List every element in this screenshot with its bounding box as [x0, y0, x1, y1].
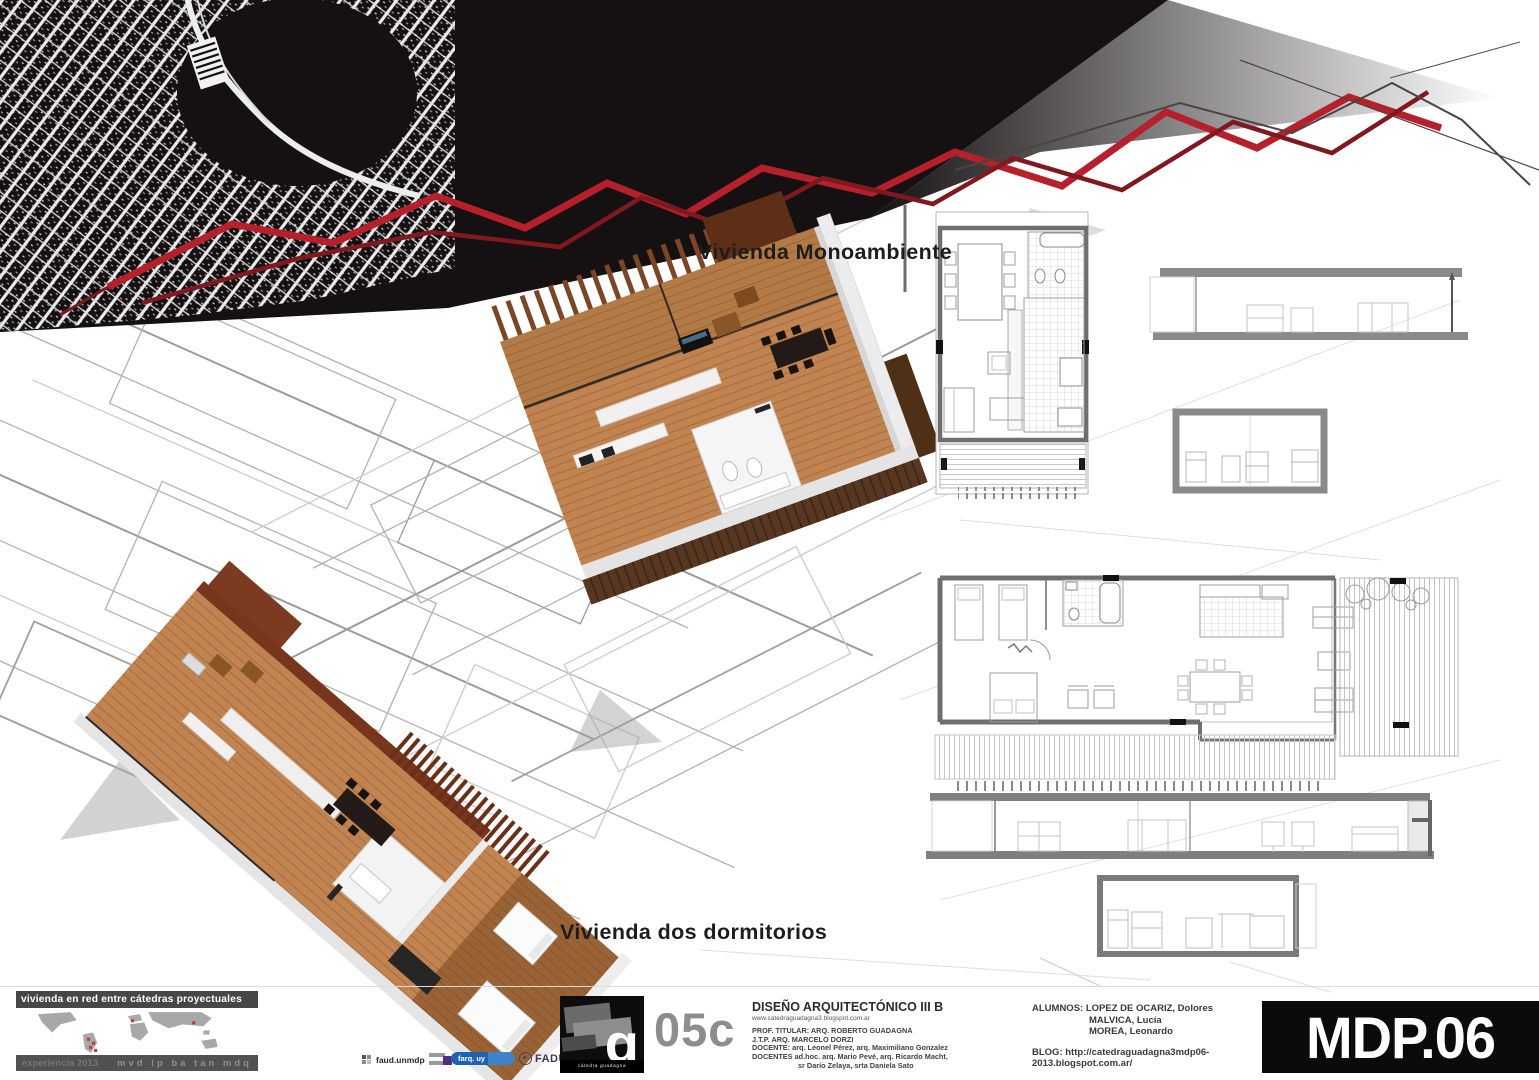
plan-monoambiente	[936, 212, 1089, 499]
logo-farq: farq. uy	[451, 1052, 515, 1065]
course-url: www.catedraguadagna3.blogspot.com.ar	[752, 1015, 1020, 1022]
world-map-graphic	[16, 1008, 258, 1055]
section-cross-top	[1176, 412, 1324, 490]
unit2-label: Vivienda dos dormitorios	[560, 920, 827, 945]
board-artwork	[0, 0, 1539, 1080]
network-block: vivienda en red entre cátedras proyectua…	[16, 991, 258, 1071]
sheet-code: 05c	[654, 1002, 735, 1057]
blog-line: BLOG: http://catedraguadagna3mdp06-2013.…	[1032, 1047, 1282, 1070]
g-mark: g	[605, 1016, 639, 1060]
students-block: ALUMNOS: LOPEZ DE OCARIZ, Dolores MALVIC…	[1032, 1003, 1282, 1070]
network-title: vivienda en red entre cátedras proyectua…	[16, 991, 258, 1008]
cities-label: mvd lp ba tan mdq	[117, 1058, 252, 1069]
footer-divider	[0, 986, 1539, 987]
catedra-g-logo: g cátedra guadagna	[560, 996, 644, 1073]
logo-faud-label: faud.unmdp	[376, 1055, 425, 1065]
plate-code-box: MDP.06	[1262, 1001, 1539, 1073]
course-title: DISEÑO ARQUITECTÓNICO III B	[752, 1000, 1020, 1014]
g-logo-caption: cátedra guadagna	[560, 1060, 644, 1073]
world-map	[16, 1008, 258, 1055]
section-long-top	[1150, 268, 1468, 340]
unit1-label: Vivienda Monoambiente	[698, 240, 952, 265]
architecture-presentation-board: Vivienda Monoambiente Vivienda dos dormi…	[0, 0, 1539, 1080]
logo-farq-label: farq. uy	[451, 1054, 485, 1063]
plan-dos-dormitorios	[935, 575, 1458, 792]
course-docentes-adhoc2: sr Darío Zelaya, srta Daniela Sato	[752, 1062, 1020, 1071]
logo-faud: faud.unmdp	[362, 1055, 425, 1065]
grid-icon	[362, 1055, 372, 1065]
g-logo-image: g	[560, 996, 644, 1060]
era-label: experiencia 2013	[22, 1058, 98, 1069]
logo-flag-icon	[429, 1053, 445, 1065]
students-line3: MOREA, Leonardo	[1032, 1026, 1282, 1038]
course-block: DISEÑO ARQUITECTÓNICO III B www.catedrag…	[752, 1000, 1020, 1071]
section-cross-bottom	[1040, 878, 1316, 986]
students-line2: MALVICA, Lucía	[1032, 1015, 1282, 1027]
circle-icon	[519, 1052, 532, 1065]
network-footer-bar: experiencia 2013 mvd lp ba tan mdq	[16, 1055, 258, 1071]
students-line1: ALUMNOS: LOPEZ DE OCARIZ, Dolores	[1032, 1003, 1282, 1015]
section-long-bottom	[926, 793, 1434, 859]
plate-code: MDP.06	[1306, 1003, 1495, 1071]
